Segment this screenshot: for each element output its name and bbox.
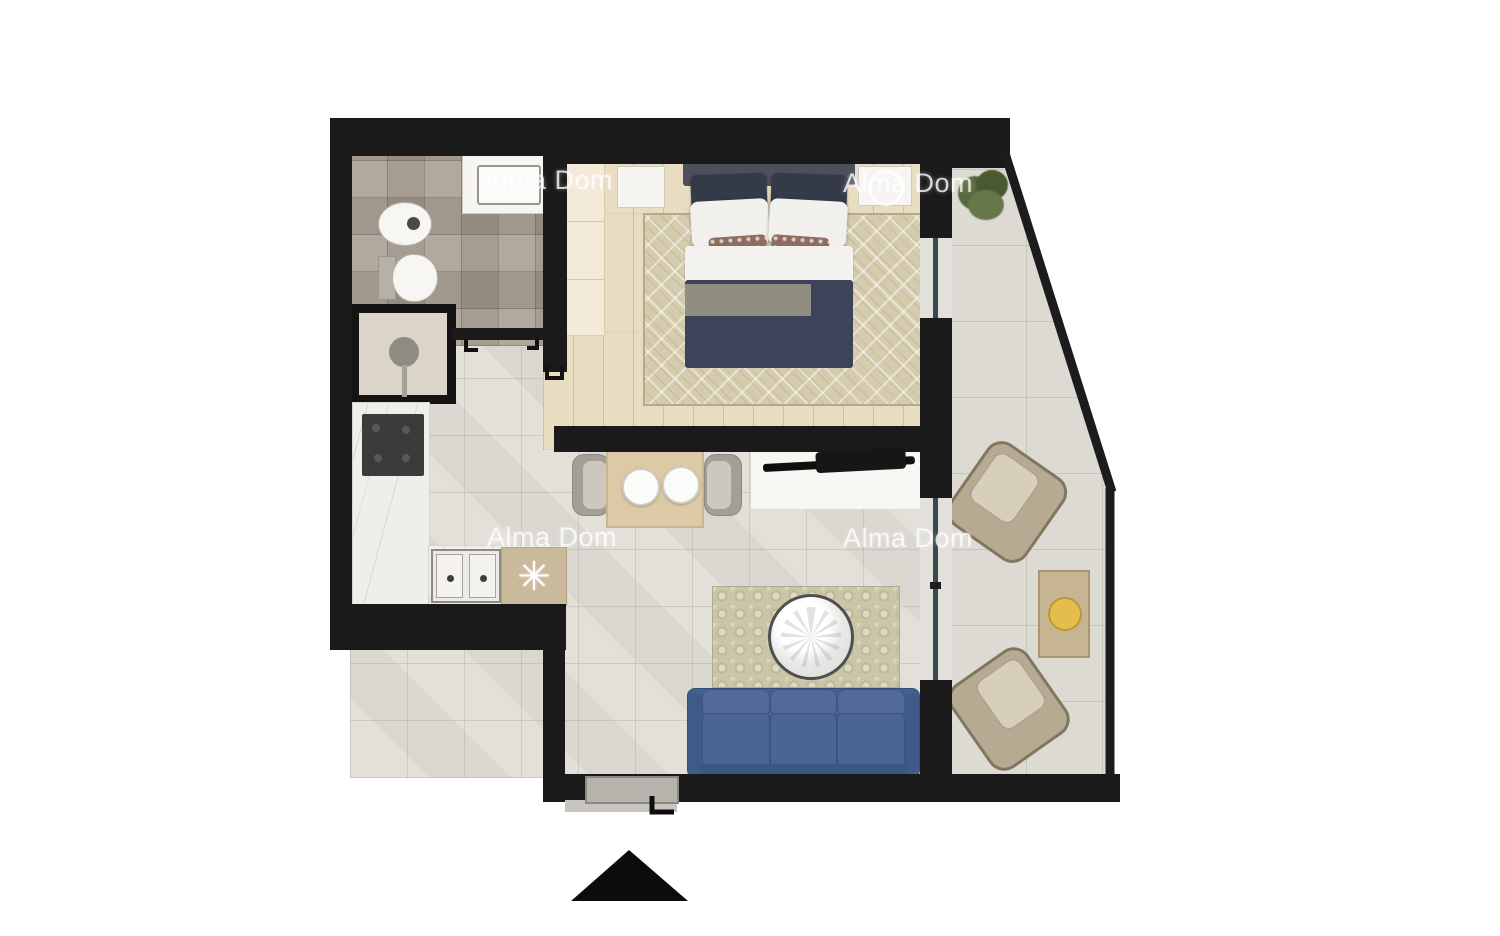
- blanket-band: [685, 284, 811, 316]
- wall-living-left: [543, 648, 565, 778]
- floor-plan: ✳: [0, 0, 1500, 936]
- wall-top-bedroom: [543, 118, 935, 164]
- washing-machine-icon: [389, 337, 419, 367]
- wall-kitchen-bottom: [330, 604, 566, 650]
- wall-left: [330, 118, 352, 650]
- bathroom-door-leaf: [452, 328, 544, 340]
- stove-cooktop: [362, 414, 424, 476]
- sofa-armrest-right: [905, 693, 919, 773]
- wall-bedroom-left: [543, 118, 567, 372]
- wall-bedroom-terrace-lower: [920, 318, 952, 450]
- wall-living-terrace-upper: [920, 448, 952, 500]
- entrance-threshold: [585, 776, 679, 804]
- plate-right: [662, 466, 700, 504]
- boiler-cabinet: ✳: [501, 547, 567, 606]
- watermark: Alma Dom: [843, 168, 973, 199]
- washing-machine-closet: [350, 304, 456, 404]
- plate-left: [622, 468, 660, 506]
- dining-chair-left: [572, 454, 610, 516]
- sofa-seat-cushion: [702, 713, 770, 768]
- bedroom-window: [920, 238, 952, 318]
- wall-bedroom-bottom: [554, 426, 934, 452]
- bidet-drain: [407, 217, 420, 230]
- sink-basin-right: [469, 554, 496, 598]
- coffee-table-round: [768, 594, 854, 680]
- watermark: Alma Dom: [487, 522, 617, 553]
- sink-basin-left: [436, 554, 463, 598]
- watermark: Alma Dom: [843, 523, 973, 554]
- gold-tray: [1048, 597, 1082, 631]
- sofa-seat-cushion: [837, 713, 905, 768]
- window-mullion: [930, 582, 941, 589]
- window-glass: [933, 238, 938, 318]
- sofa-armrest-left: [688, 693, 702, 773]
- terrace-side-table: [1038, 570, 1090, 658]
- dining-chair-right: [704, 454, 742, 516]
- sofa-blue: [687, 688, 920, 778]
- watermark: Alma Dom: [483, 165, 613, 196]
- sofa-seat-cushion: [770, 713, 837, 768]
- tv-console: [750, 446, 927, 510]
- double-bed: [683, 162, 855, 372]
- toilet: [392, 254, 438, 302]
- dining-table: [606, 450, 704, 528]
- boiler-asterisk-icon: ✳: [517, 557, 551, 597]
- bidet: [378, 202, 432, 246]
- nightstand-left: [617, 166, 665, 208]
- kitchen-sink: [431, 549, 501, 603]
- washer-pipe: [402, 365, 407, 397]
- north-arrow-icon: [571, 850, 688, 901]
- wall-living-terrace-lower: [920, 680, 952, 776]
